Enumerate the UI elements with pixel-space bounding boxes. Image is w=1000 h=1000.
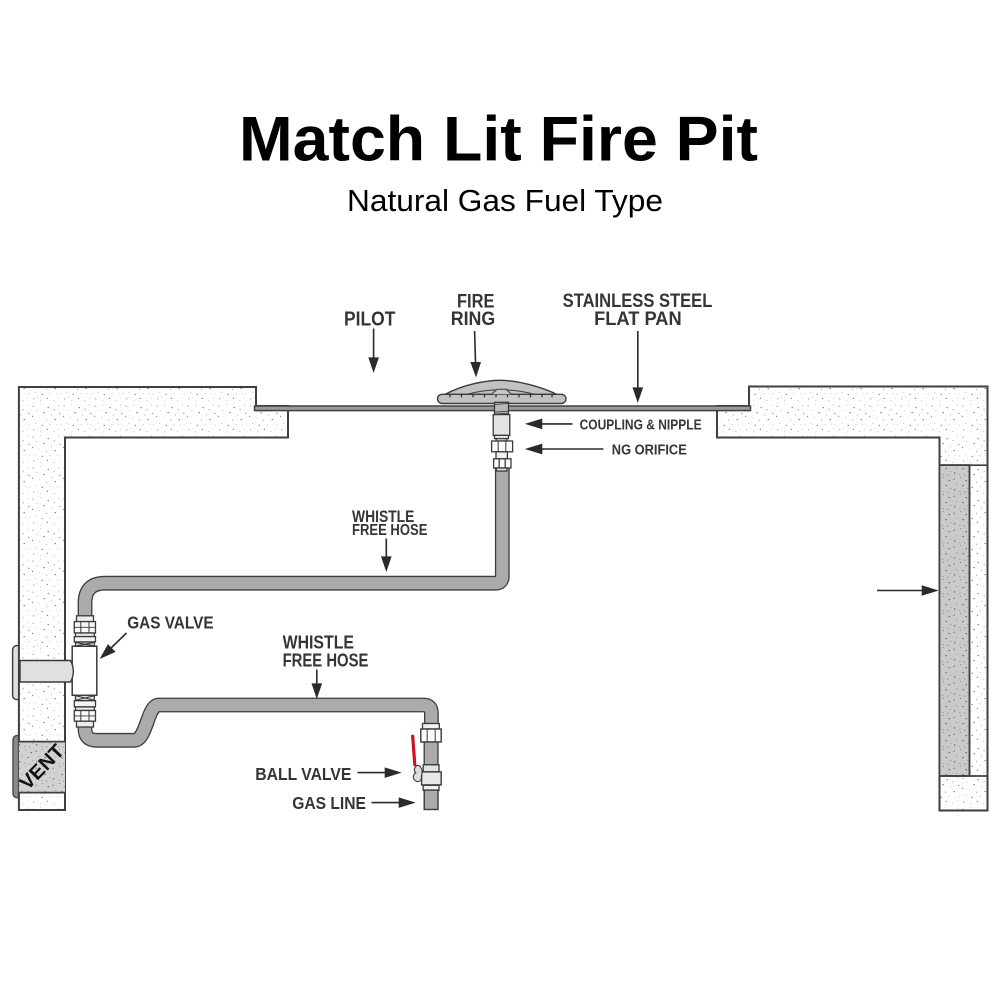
svg-text:GAS VALVE: GAS VALVE [127,613,213,633]
svg-text:PILOT: PILOT [344,307,396,330]
svg-text:Natural Gas Fuel Type: Natural Gas Fuel Type [347,184,663,218]
svg-text:COUPLING & NIPPLE: COUPLING & NIPPLE [580,417,702,433]
svg-text:FREE HOSE: FREE HOSE [283,651,369,671]
svg-text:RING: RING [451,308,496,330]
svg-text:FLAT PAN: FLAT PAN [594,308,682,330]
svg-text:BALL VALVE: BALL VALVE [255,764,351,784]
svg-text:GAS LINE: GAS LINE [292,793,366,813]
svg-text:WHISTLE: WHISTLE [283,633,354,653]
svg-text:FREE HOSE: FREE HOSE [352,522,428,539]
svg-text:NG ORIFICE: NG ORIFICE [612,443,687,459]
svg-text:Match Lit Fire Pit: Match Lit Fire Pit [239,105,758,175]
